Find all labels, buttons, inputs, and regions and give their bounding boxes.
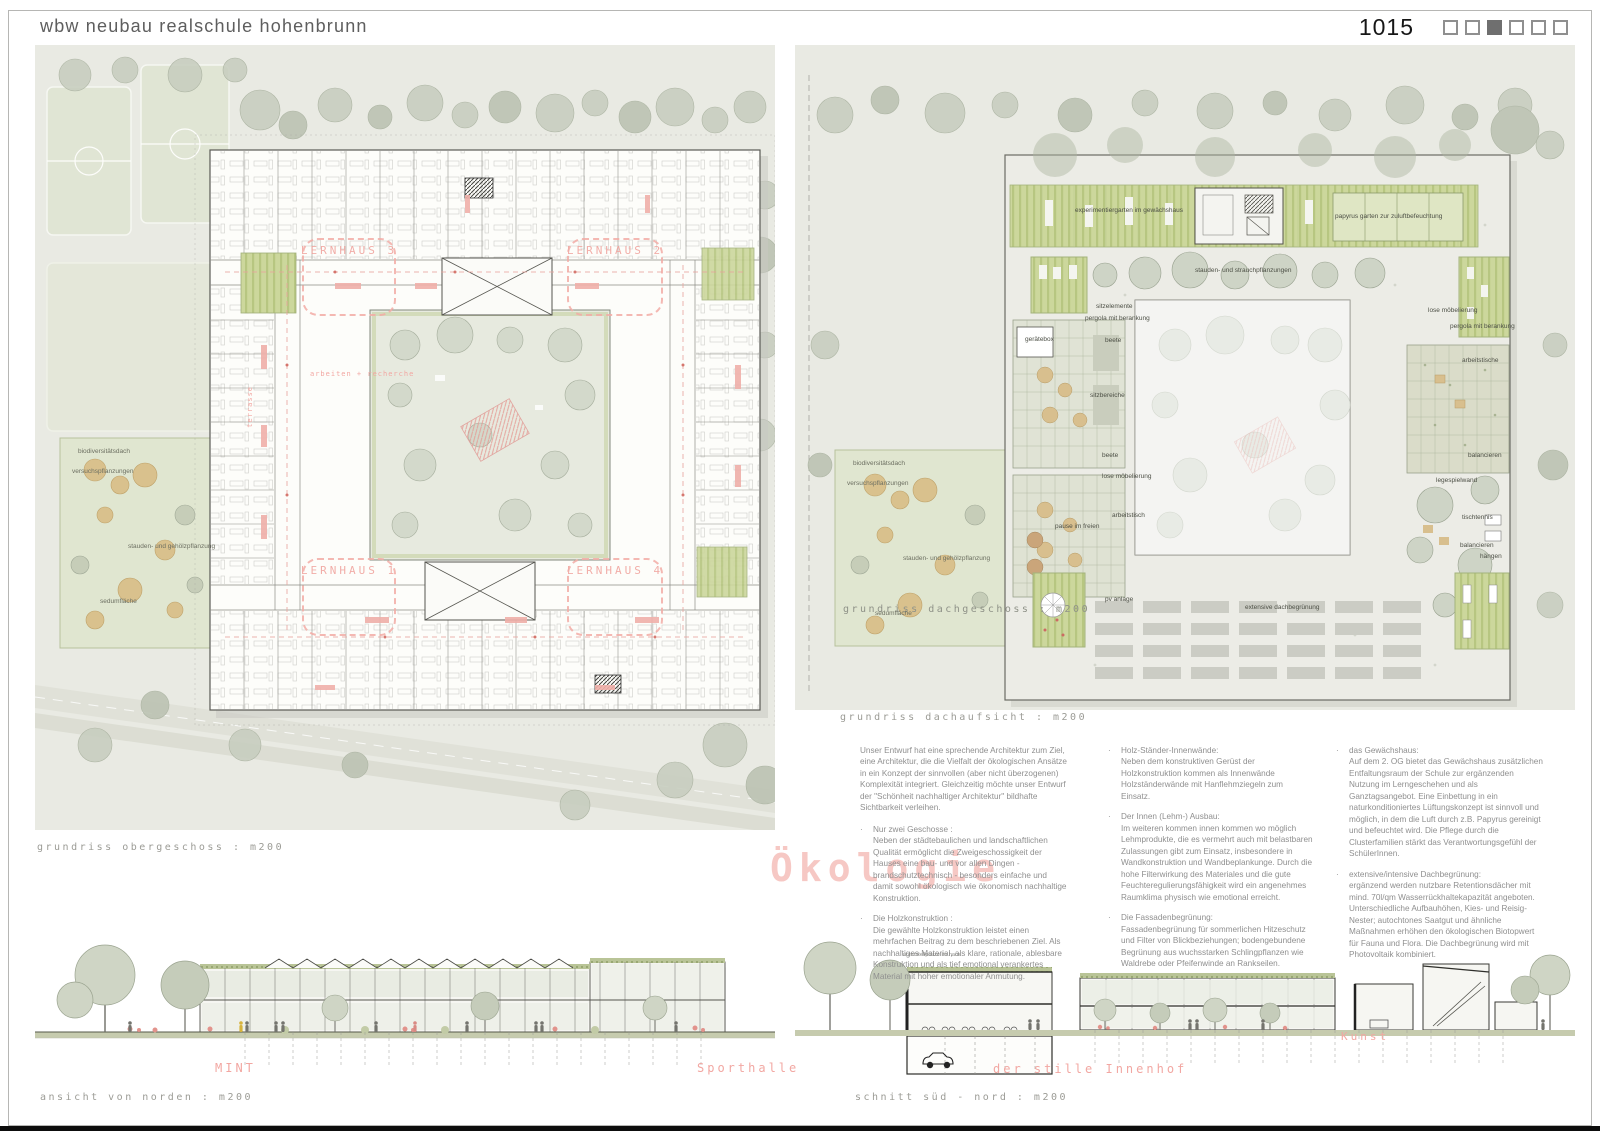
page-square-2 [1465, 20, 1480, 35]
garden-annotation: stauden- und gehölzpflanzung [128, 543, 215, 550]
elevation-label-mint: MINT [215, 1061, 256, 1075]
sheet-pagination: 1015 [1359, 14, 1568, 41]
item-text: Die Holzkonstruktion :Die gewählte Holzk… [873, 913, 1068, 982]
text-item: · das Gewächshaus:Auf dem 2. OG bietet d… [1336, 745, 1544, 860]
text-column-3: · das Gewächshaus:Auf dem 2. OG bietet d… [1336, 745, 1544, 970]
roof-annotation: beete [1102, 452, 1118, 459]
bullet: · [1108, 811, 1121, 903]
text-column-2: · Holz-Ständer-Innenwände:Neben dem kons… [1108, 745, 1314, 979]
roof-annotation: stauden- und strauchpflanzungen [1195, 267, 1292, 274]
roof-annotation: balancieren [1468, 452, 1502, 459]
elevation-label-sporthalle: Sporthalle [697, 1061, 799, 1075]
roof-annotation: beete [1105, 337, 1121, 344]
intro-paragraph: Unser Entwurf hat eine sprechende Archit… [860, 745, 1068, 814]
sheet-bottom-edge [0, 1126, 1600, 1131]
roof-annotation: sitzelemente [1096, 303, 1133, 310]
lernhaus-label: LERNHAUS 2 [567, 244, 663, 257]
page-square-4 [1509, 20, 1524, 35]
item-text: das Gewächshaus:Auf dem 2. OG bietet das… [1349, 745, 1544, 860]
roof-annotation: lose möbelierung [1428, 307, 1478, 314]
bullet: · [1336, 745, 1349, 860]
roof-annotation: extensive dachbegrünung [1245, 604, 1319, 611]
garden-annotation: stauden- und gehölzpflanzung [903, 555, 990, 562]
school-building-plan [195, 135, 775, 725]
entry-number: 1015 [1359, 14, 1414, 41]
section-annotation-bikes: unterstellplätze im haus [903, 952, 961, 958]
lernhaus-zone-2: LERNHAUS 2 [567, 238, 663, 316]
item-text: Holz-Ständer-Innenwände:Neben dem konstr… [1121, 745, 1314, 802]
lernhaus-label: LERNHAUS 4 [567, 564, 663, 577]
item-text: Nur zwei Geschosse :Neben der städtebaul… [873, 824, 1068, 904]
floor-plan-caption: grundriss obergeschoss : m200 [37, 842, 284, 853]
roof-annotation: gerätebox [1025, 336, 1054, 343]
bullet: · [1108, 745, 1121, 802]
page-square-1 [1443, 20, 1458, 35]
section-label-kunst: Kunst [1341, 1030, 1389, 1043]
room-label-arbeiten: arbeiten + recherche [310, 370, 414, 378]
garden-annotation: versuchspflanzungen [72, 468, 133, 475]
item-text: Der Innen (Lehm-) Ausbau:Im weiteren kom… [1121, 811, 1314, 903]
text-item: · Nur zwei Geschosse :Neben der städteba… [860, 824, 1068, 904]
page-square-5 [1531, 20, 1546, 35]
roof-annotation: lose möbelierung [1102, 473, 1152, 480]
text-item: · Holz-Ständer-Innenwände:Neben dem kons… [1108, 745, 1314, 802]
text-item: · Der Innen (Lehm-) Ausbau:Im weiteren k… [1108, 811, 1314, 903]
bullet: · [860, 824, 873, 904]
section-caption: schnitt süd - nord : m200 [855, 1092, 1068, 1103]
bullet: · [860, 913, 873, 982]
lernhaus-zone-4: LERNHAUS 4 [567, 558, 663, 636]
roof-annotation: balancieren [1460, 542, 1494, 549]
elevation-caption: ansicht von norden : m200 [40, 1092, 253, 1103]
roof-annotation: sitzbereiche [1090, 392, 1125, 399]
item-text: Die Fassadenbegrünung:Fassadenbegrünung … [1121, 912, 1314, 969]
sheet-title: wbw neubau realschule hohenbrunn [40, 16, 368, 37]
roof-annotation: hängen [1480, 553, 1502, 560]
text-column-1: Unser Entwurf hat eine sprechende Archit… [860, 745, 1068, 991]
garden-annotation: sedumfläche [875, 610, 912, 617]
text-item: · Die Holzkonstruktion :Die gewählte Hol… [860, 913, 1068, 982]
roof-annotation: arbeitstische [1462, 357, 1499, 364]
item-text: extensive/intensive Dachbegrünung:ergänz… [1349, 869, 1544, 961]
roof-plan-caption: grundriss dachaufsicht : m200 [840, 712, 1087, 723]
bullet: · [1108, 912, 1121, 969]
garden-annotation: biodiversitätsdach [853, 460, 905, 467]
lernhaus-zone-1: LERNHAUS 1 [302, 558, 396, 636]
garden-annotation: biodiversitätsdach [78, 448, 130, 455]
roof-annotation: arbeitstisch [1112, 512, 1145, 519]
garden-annotation: versuchspflanzungen [847, 480, 908, 487]
roof-annotation: pergola mit berankung [1085, 315, 1150, 322]
north-elevation-panel [35, 880, 775, 1080]
page-square-6 [1553, 20, 1568, 35]
floor-plan-drawing [35, 45, 775, 830]
text-item: · Die Fassadenbegrünung:Fassadenbegrünun… [1108, 912, 1314, 969]
lernhaus-zone-3: LERNHAUS 3 [302, 238, 396, 316]
roof-annotation: legespielwand [1436, 477, 1477, 484]
roof-annotation: pv anlage [1105, 596, 1133, 603]
floor-plan-panel [35, 45, 775, 830]
roof-annotation: tischtennis [1462, 514, 1493, 521]
room-label-terrasse: terrasse [246, 386, 254, 428]
lernhaus-label: LERNHAUS 1 [301, 564, 397, 577]
garden-annotation: sedumfläche [100, 598, 137, 605]
roof-annotation: pergola mit berankung [1450, 323, 1515, 330]
roof-annotation: pause im freien [1055, 523, 1099, 530]
bullet: · [1336, 869, 1349, 961]
roof-annotation: experimentiergarten im gewächshaus [1075, 207, 1183, 214]
page-square-3-active [1487, 20, 1502, 35]
roof-annotation: papyrus garten zur zuluftbefeuchtung [1335, 213, 1442, 220]
lernhaus-label: LERNHAUS 3 [301, 244, 397, 257]
section-label-innenhof: der stille Innenhof [993, 1062, 1187, 1076]
text-item: · extensive/intensive Dachbegrünung:ergä… [1336, 869, 1544, 961]
north-elevation-drawing [35, 880, 775, 1080]
